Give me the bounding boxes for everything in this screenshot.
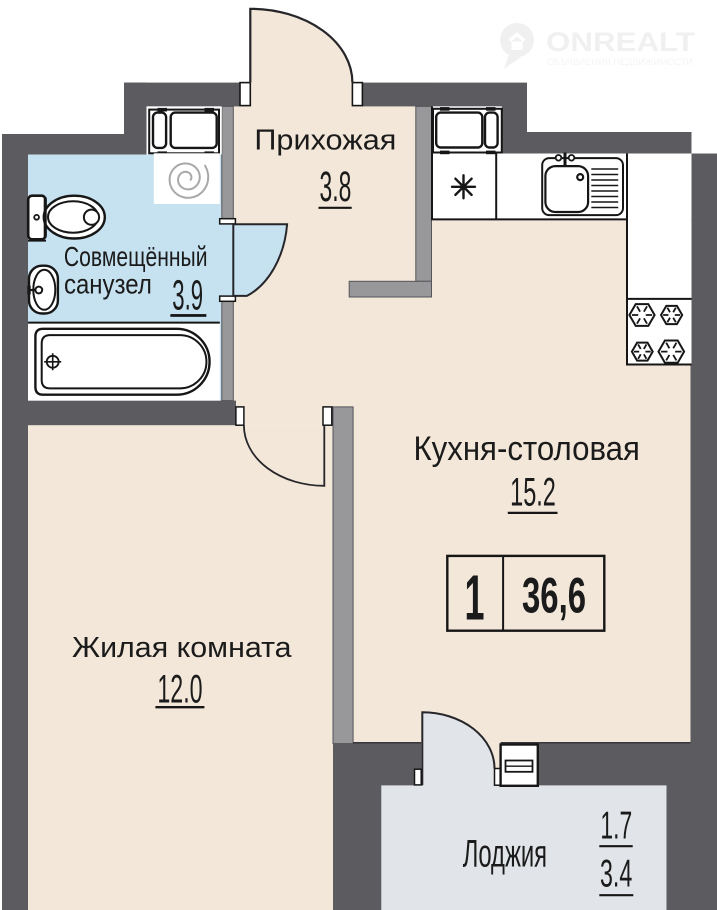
svg-text:15.2: 15.2 [510, 471, 556, 515]
svg-text:12.0: 12.0 [157, 667, 202, 711]
svg-text:ONREALT: ONREALT [546, 27, 696, 57]
svg-text:3.9: 3.9 [172, 272, 203, 320]
svg-text:Совмещённый: Совмещённый [64, 241, 208, 272]
svg-text:Прихожая: Прихожая [254, 125, 396, 157]
svg-text:Кухня-столовая: Кухня-столовая [413, 430, 640, 468]
svg-text:Лоджия: Лоджия [463, 833, 547, 876]
svg-text:3.8: 3.8 [320, 163, 352, 211]
svg-text:36,6: 36,6 [522, 568, 586, 624]
svg-text:3.4: 3.4 [600, 853, 632, 896]
svg-text:1.7: 1.7 [600, 805, 632, 848]
svg-text:1: 1 [465, 562, 485, 634]
svg-text:Жилая комната: Жилая комната [72, 632, 293, 664]
svg-text:санузел: санузел [64, 269, 152, 300]
svg-text:ОБЪЯВЛЕНИЯ НЕДВИЖИМОСТИ: ОБЪЯВЛЕНИЯ НЕДВИЖИМОСТИ [547, 57, 693, 67]
